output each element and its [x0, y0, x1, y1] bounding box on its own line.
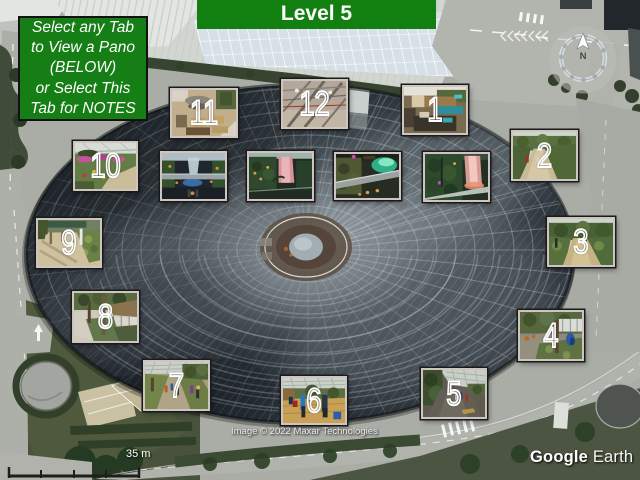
svg-text:N: N: [580, 51, 587, 62]
